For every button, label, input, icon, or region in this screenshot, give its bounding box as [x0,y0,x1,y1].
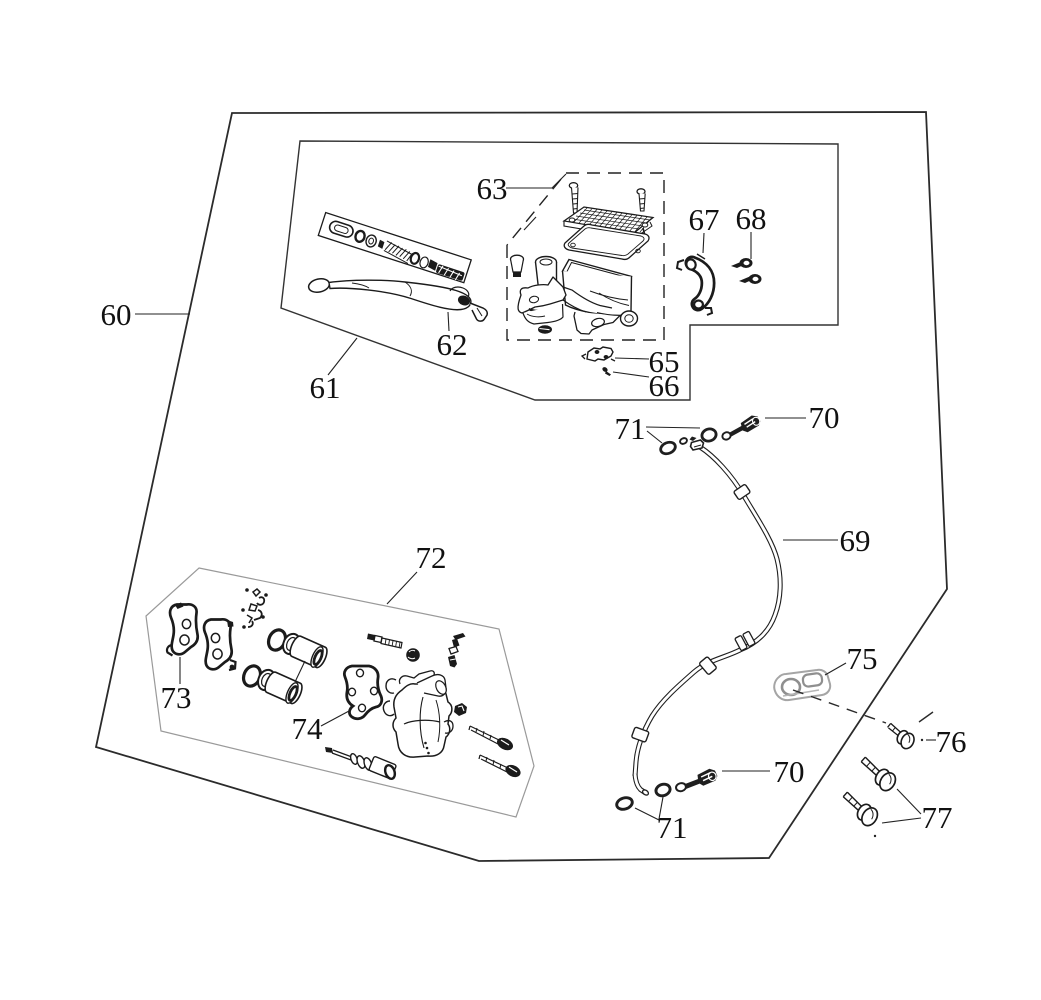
svg-text:63: 63 [477,171,508,206]
svg-text:68: 68 [736,201,767,236]
svg-text:61: 61 [310,370,341,405]
svg-text:62: 62 [437,327,468,362]
svg-text:77: 77 [922,800,953,835]
svg-text:70: 70 [809,400,840,435]
svg-text:66: 66 [649,368,680,403]
svg-text:72: 72 [416,540,447,575]
svg-text:60: 60 [101,297,132,332]
svg-text:69: 69 [840,523,871,558]
svg-text:75: 75 [847,641,878,676]
svg-text:67: 67 [689,202,720,237]
svg-text:70: 70 [774,754,805,789]
svg-text:71: 71 [657,810,688,845]
svg-text:76: 76 [936,724,967,759]
svg-text:71: 71 [615,411,646,446]
svg-text:73: 73 [161,680,192,715]
svg-text:74: 74 [292,711,324,746]
